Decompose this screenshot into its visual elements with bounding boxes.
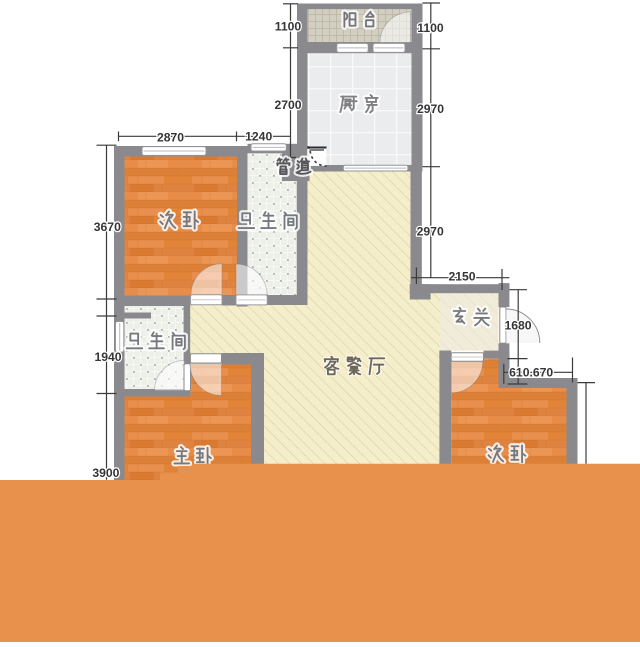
svg-text:2150: 2150 — [448, 269, 475, 283]
svg-text:1240: 1240 — [245, 130, 272, 144]
svg-text:1680: 1680 — [504, 319, 531, 333]
svg-text:2970: 2970 — [417, 225, 444, 239]
svg-text:1940: 1940 — [94, 350, 121, 364]
svg-text:1100: 1100 — [275, 19, 302, 33]
svg-text:2870: 2870 — [157, 130, 184, 144]
svg-text:3670: 3670 — [94, 220, 121, 234]
svg-text:1100: 1100 — [417, 21, 444, 35]
svg-text:610.670: 610.670 — [509, 365, 553, 379]
svg-text:2970: 2970 — [417, 102, 444, 116]
svg-text:3900: 3900 — [92, 466, 119, 480]
svg-text:2700: 2700 — [274, 98, 301, 112]
